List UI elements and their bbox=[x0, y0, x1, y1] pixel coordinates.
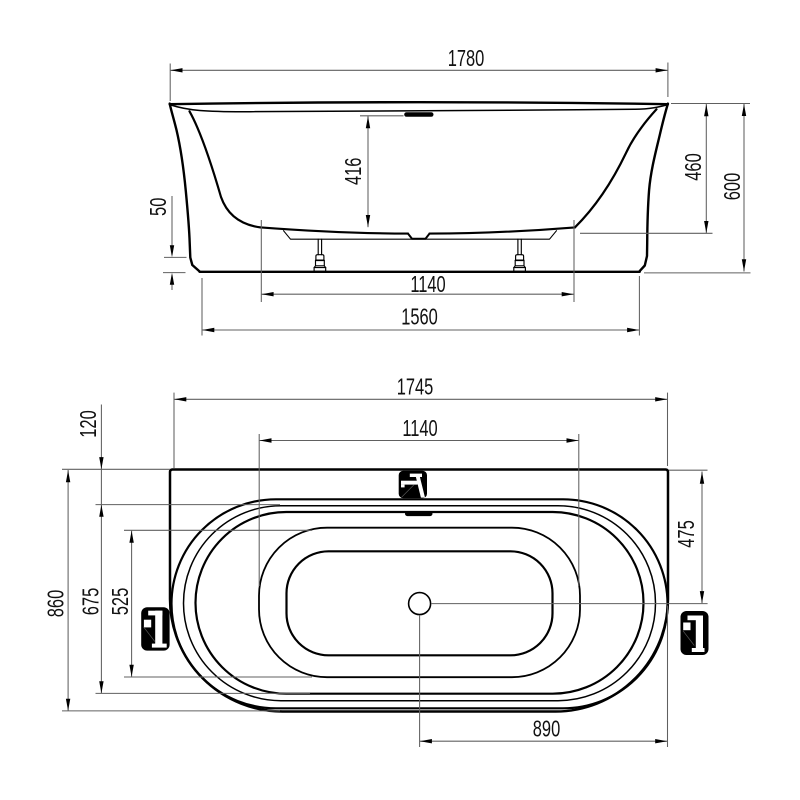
svg-text:1780: 1780 bbox=[448, 46, 485, 71]
svg-text:50: 50 bbox=[146, 198, 171, 216]
svg-text:860: 860 bbox=[44, 590, 69, 617]
svg-text:1745: 1745 bbox=[397, 375, 434, 400]
svg-text:890: 890 bbox=[533, 717, 560, 742]
svg-text:460: 460 bbox=[682, 153, 707, 180]
svg-text:475: 475 bbox=[674, 520, 699, 547]
svg-text:525: 525 bbox=[108, 588, 133, 615]
svg-text:675: 675 bbox=[79, 588, 104, 615]
svg-text:1560: 1560 bbox=[401, 305, 438, 330]
svg-text:1140: 1140 bbox=[410, 273, 445, 298]
svg-text:600: 600 bbox=[720, 173, 745, 200]
svg-text:416: 416 bbox=[342, 158, 367, 185]
svg-text:1140: 1140 bbox=[402, 417, 437, 442]
svg-text:120: 120 bbox=[77, 410, 102, 437]
